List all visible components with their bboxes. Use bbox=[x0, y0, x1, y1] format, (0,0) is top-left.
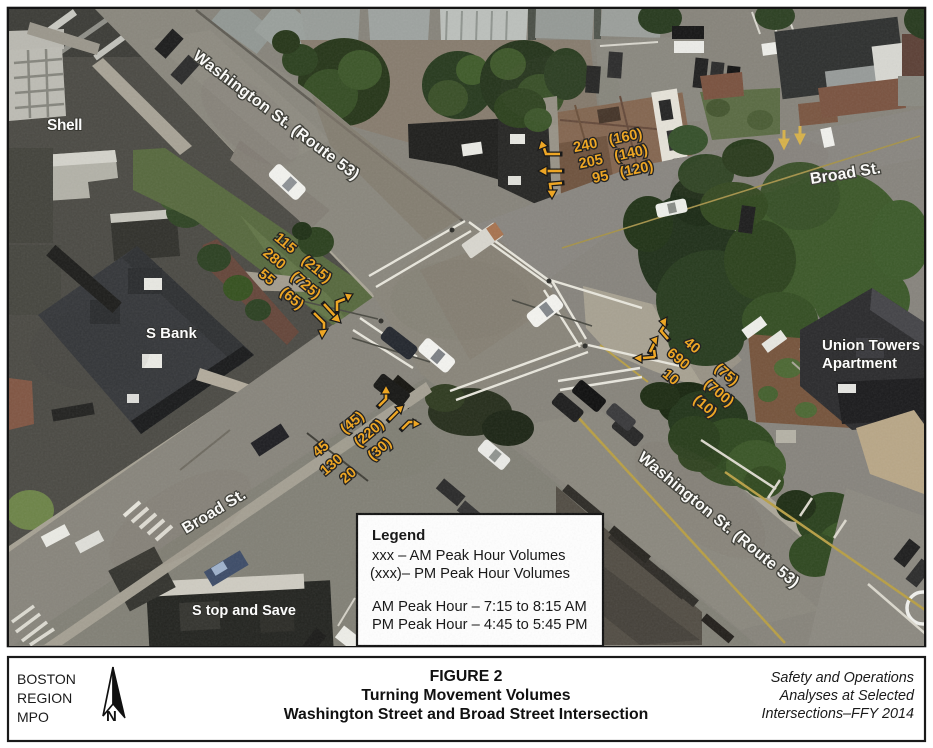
svg-text:N: N bbox=[106, 708, 117, 725]
svg-text:Intersections–FFY 2014: Intersections–FFY 2014 bbox=[761, 706, 914, 722]
svg-text:MPO: MPO bbox=[17, 709, 49, 725]
svg-text:Analyses at Selected: Analyses at Selected bbox=[779, 688, 915, 704]
svg-text:Turning Movement Volumes: Turning Movement Volumes bbox=[361, 687, 570, 704]
svg-text:BOSTON: BOSTON bbox=[17, 671, 76, 687]
svg-text:REGION: REGION bbox=[17, 690, 72, 706]
svg-text:Washington Street and Broad St: Washington Street and Broad Street Inter… bbox=[284, 706, 649, 723]
svg-text:Safety and Operations: Safety and Operations bbox=[771, 670, 914, 686]
svg-text:FIGURE 2: FIGURE 2 bbox=[430, 668, 503, 685]
